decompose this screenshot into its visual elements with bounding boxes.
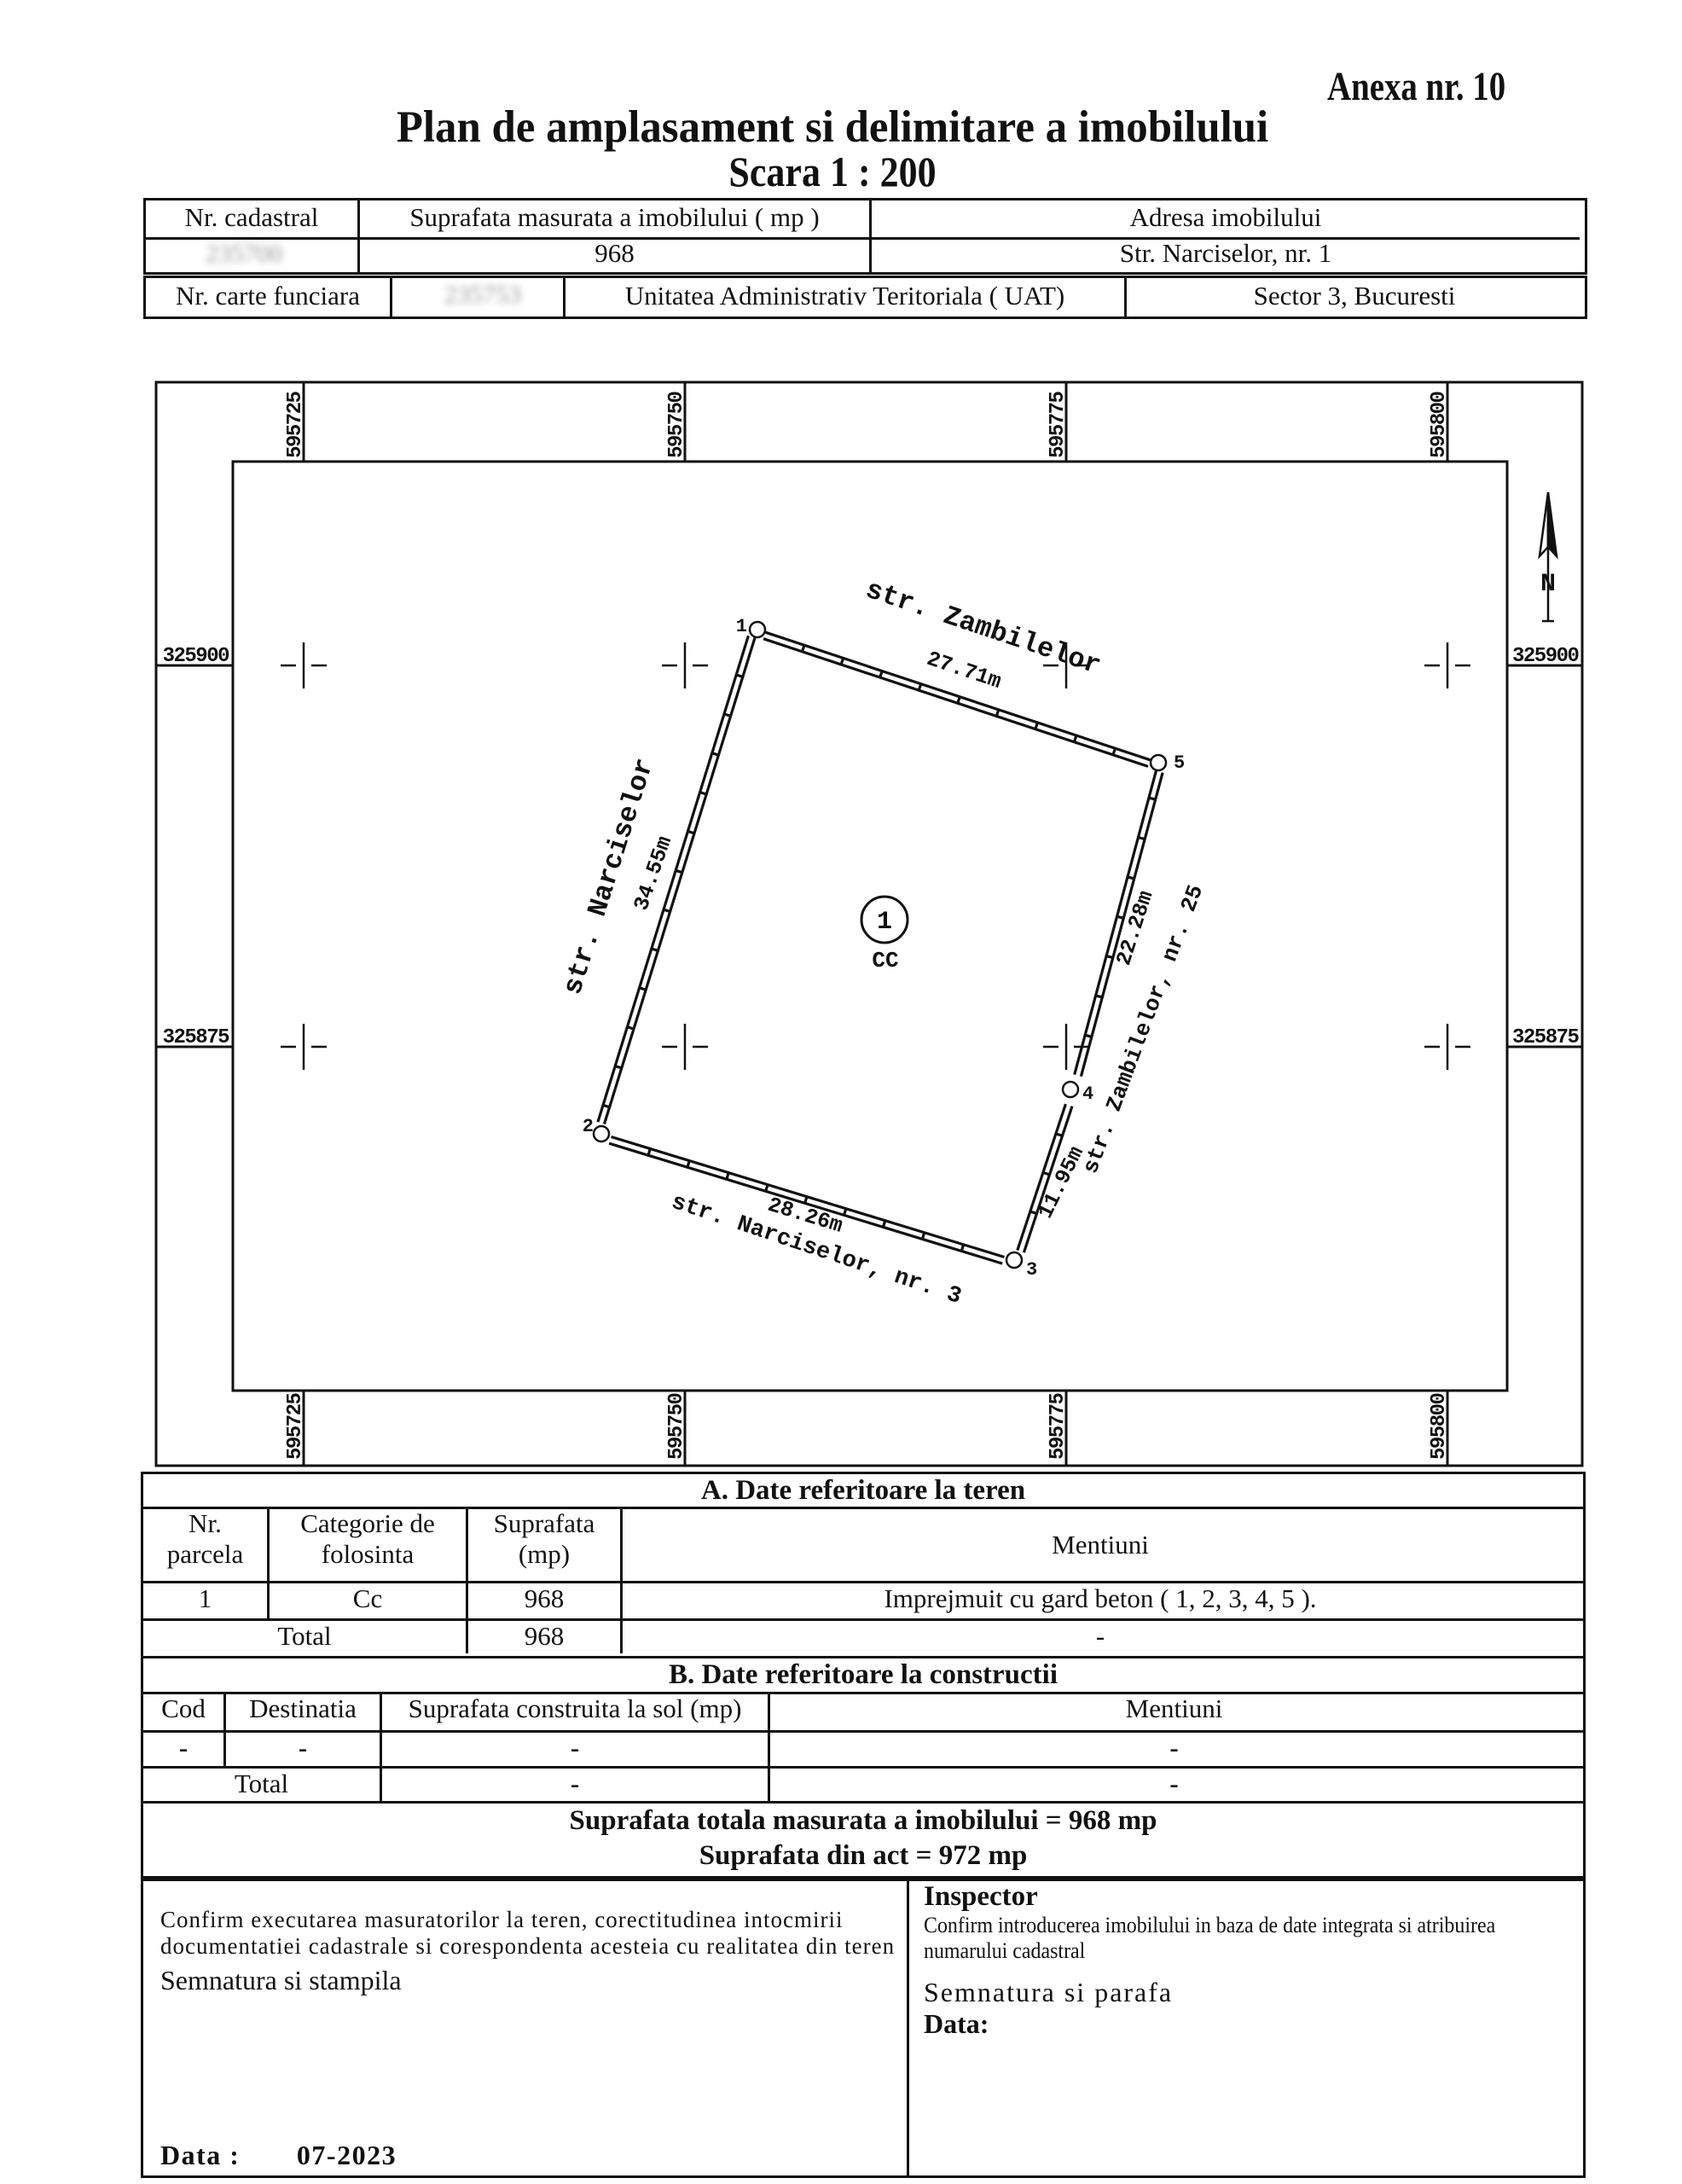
svg-text:N: N [1540, 570, 1556, 599]
svg-text:34.55m: 34.55m [629, 834, 677, 915]
svg-text:595750: 595750 [665, 391, 688, 458]
svg-text:CC: CC [872, 948, 898, 973]
svg-text:325875: 325875 [1512, 1026, 1580, 1049]
svg-text:325900: 325900 [163, 645, 230, 668]
svg-text:11.95m: 11.95m [1033, 1142, 1089, 1223]
svg-text:595800: 595800 [1428, 1392, 1451, 1460]
svg-text:595750: 595750 [665, 1392, 688, 1460]
svg-text:1: 1 [877, 908, 892, 937]
svg-text:595725: 595725 [284, 1392, 307, 1460]
svg-text:2: 2 [583, 1116, 594, 1137]
svg-text:325875: 325875 [163, 1026, 230, 1049]
svg-text:27.71m: 27.71m [924, 647, 1005, 694]
svg-text:595775: 595775 [1047, 1392, 1070, 1460]
svg-text:5: 5 [1174, 752, 1185, 774]
svg-text:595775: 595775 [1047, 391, 1070, 458]
svg-text:1: 1 [736, 616, 747, 637]
svg-text:4: 4 [1082, 1083, 1093, 1105]
svg-text:595725: 595725 [284, 391, 307, 458]
svg-text:3: 3 [1026, 1259, 1037, 1281]
svg-text:325900: 325900 [1512, 645, 1580, 668]
svg-text:595800: 595800 [1428, 391, 1451, 458]
svg-text:22.28m: 22.28m [1111, 888, 1158, 969]
